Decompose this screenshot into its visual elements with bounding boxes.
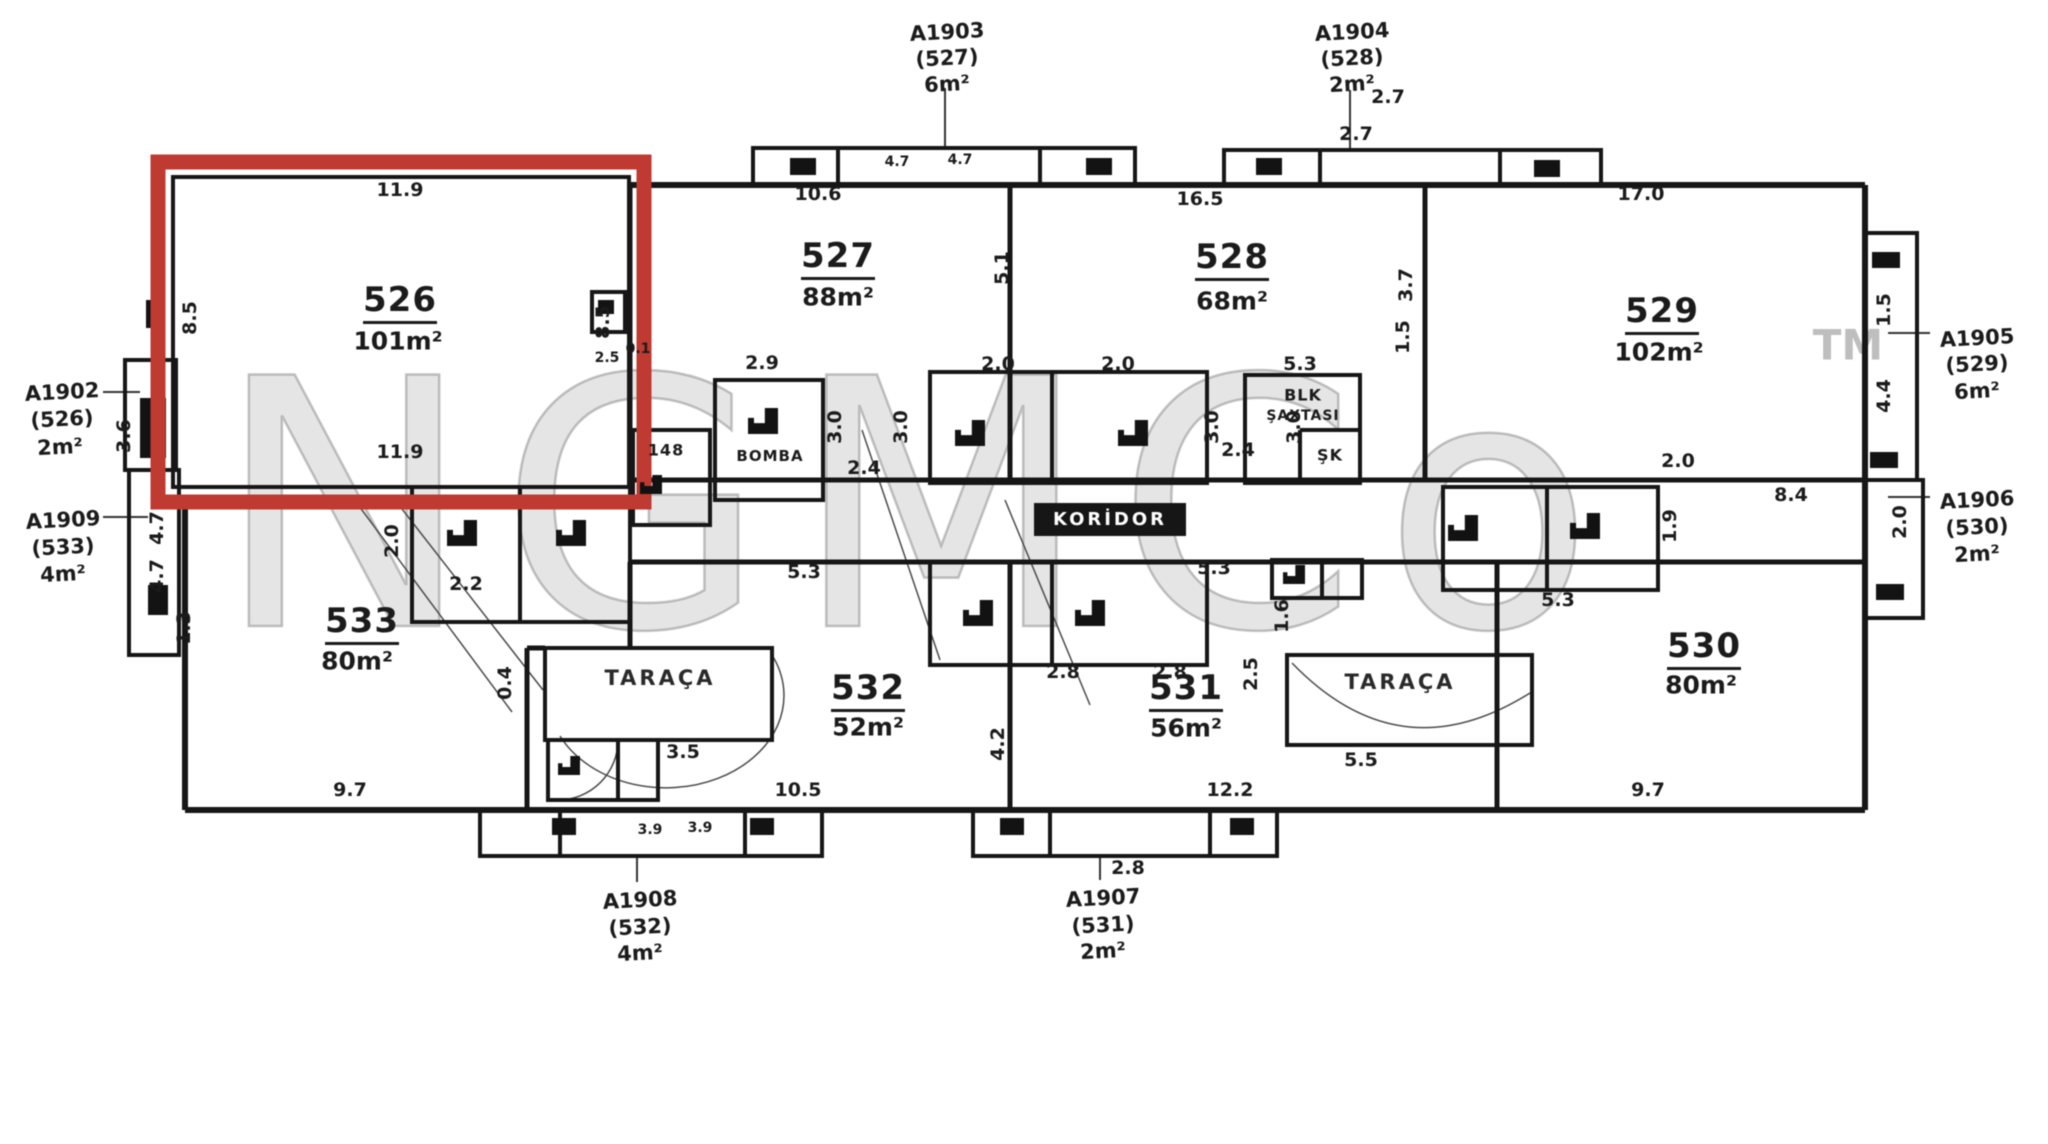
dim: 5.3 bbox=[1197, 557, 1231, 579]
dim: 2.0 bbox=[1661, 450, 1695, 472]
dim: 8.5 bbox=[179, 301, 201, 335]
sk-shaft-label: ŞK bbox=[1317, 446, 1343, 465]
dim: 1.9 bbox=[1659, 509, 1681, 543]
dim: 11.9 bbox=[377, 441, 424, 463]
dim: 0.4 bbox=[494, 666, 516, 700]
callout-a1906-area: 2m² bbox=[1954, 541, 2001, 567]
room-528-number: 528 bbox=[1195, 237, 1269, 281]
callout-a1902-ref: (526) bbox=[30, 405, 94, 432]
room-533-area: 80m² bbox=[321, 647, 393, 676]
callout-a1904-id: A1904 bbox=[1314, 18, 1390, 46]
dim: 11.9 bbox=[377, 179, 424, 201]
dim: 2.4 bbox=[847, 457, 881, 479]
callout-a1909-area: 4m² bbox=[40, 561, 87, 587]
callout-a1907-ref: (531) bbox=[1071, 911, 1135, 938]
dim: 2.2 bbox=[449, 573, 483, 595]
dim: 10.6 bbox=[795, 183, 842, 205]
callout-a1905-id: A1905 bbox=[1939, 324, 2015, 352]
dim: 2.0 bbox=[1889, 505, 1911, 539]
terrace-left-label: TARAÇA bbox=[604, 666, 715, 690]
dim: 3.7 bbox=[1395, 268, 1417, 302]
dim: 2.0 bbox=[981, 353, 1015, 375]
dim: 3.9 bbox=[688, 820, 713, 836]
dim: 4.7 bbox=[885, 154, 910, 170]
room-529-number: 529 bbox=[1625, 291, 1699, 335]
dim: 5.5 bbox=[1344, 749, 1378, 771]
callout-a1902-id: A1902 bbox=[24, 378, 100, 406]
pump-room-label: BOMBA bbox=[736, 447, 803, 465]
room-526-area: 101m² bbox=[353, 327, 442, 356]
callout-a1903-area: 6m² bbox=[924, 71, 971, 97]
dim: 4.7 bbox=[948, 152, 973, 168]
callout-a1904-ref: (528) bbox=[1320, 44, 1384, 71]
dim: 3.0 bbox=[890, 410, 912, 444]
callout-a1906-ref: (530) bbox=[1945, 513, 2009, 540]
callout-a1908-id: A1908 bbox=[602, 886, 678, 914]
floorplan-lines bbox=[0, 0, 2048, 1144]
callout-a1907-area: 2m² bbox=[1080, 938, 1127, 964]
dim: 4.7 bbox=[146, 559, 168, 593]
dim: 12.2 bbox=[1207, 779, 1254, 801]
room-148-label: 148 bbox=[648, 441, 684, 460]
callout-a1909-ref: (533) bbox=[31, 533, 95, 560]
dim: 9.7 bbox=[333, 779, 367, 801]
floorplan-canvas: NGMCo TM bbox=[0, 0, 2048, 1144]
room-532-number: 532 bbox=[831, 668, 905, 712]
dim: 3.6 bbox=[113, 419, 135, 453]
dim: 2.5 bbox=[595, 350, 620, 366]
dim: 0.1 bbox=[626, 341, 651, 357]
callout-a1908-ref: (532) bbox=[608, 913, 672, 940]
dim: 5.3 bbox=[1283, 353, 1317, 375]
callout-a1902-area: 2m² bbox=[37, 434, 84, 460]
dim: 2.7 bbox=[1371, 86, 1405, 108]
dim: 3.9 bbox=[638, 822, 663, 838]
dim: 1.6 bbox=[1271, 599, 1293, 633]
room-533-number: 533 bbox=[325, 601, 399, 645]
dim: 1.5 bbox=[1392, 320, 1414, 354]
dim: 2.4 bbox=[1221, 439, 1255, 461]
dim: 1.5 bbox=[1873, 293, 1895, 327]
dim: 3.0 bbox=[1201, 410, 1223, 444]
room-531-area: 56m² bbox=[1150, 714, 1222, 743]
dim: 2.9 bbox=[745, 352, 779, 374]
dim: 17.0 bbox=[1618, 183, 1665, 205]
callout-a1909-id: A1909 bbox=[25, 506, 101, 534]
callout-a1903-id: A1903 bbox=[909, 18, 985, 46]
room-528-area: 68m² bbox=[1196, 287, 1268, 316]
dim: 3.5 bbox=[666, 741, 700, 763]
dim: 2.8 bbox=[1046, 661, 1080, 683]
corridor-label: KORİDOR bbox=[1034, 503, 1186, 536]
dim: 2.0 bbox=[381, 524, 403, 558]
dim: 3.0 bbox=[1283, 410, 1305, 444]
room-527-number: 527 bbox=[801, 236, 875, 280]
dim: 2.0 bbox=[1101, 353, 1135, 375]
dim: 1.3 bbox=[173, 611, 195, 645]
dim: 8.5 bbox=[592, 305, 614, 339]
callout-a1908-area: 4m² bbox=[617, 940, 664, 966]
dim: 2.7 bbox=[1339, 123, 1373, 145]
callout-a1907-id: A1907 bbox=[1065, 884, 1141, 912]
dim: 5.3 bbox=[787, 561, 821, 583]
room-529-area: 102m² bbox=[1614, 338, 1703, 367]
dim: 2.5 bbox=[1240, 657, 1262, 691]
dim: 9.7 bbox=[1631, 779, 1665, 801]
room-532-area: 52m² bbox=[832, 713, 904, 742]
callout-a1905-ref: (529) bbox=[1945, 350, 2009, 377]
dim: 4.2 bbox=[987, 727, 1009, 761]
dim: 5.1 bbox=[991, 251, 1013, 285]
room-530-number: 530 bbox=[1667, 626, 1741, 670]
callout-a1904-area: 2m² bbox=[1329, 71, 1376, 97]
dim: 2.8 bbox=[1111, 857, 1145, 879]
room-526-number: 526 bbox=[363, 280, 437, 324]
dim: 3.0 bbox=[824, 410, 846, 444]
callout-a1903-ref: (527) bbox=[915, 44, 979, 71]
dim: 5.3 bbox=[1541, 589, 1575, 611]
dim: 4.7 bbox=[146, 511, 168, 545]
room-527-area: 88m² bbox=[802, 283, 874, 312]
shaft-label-line1: BLK bbox=[1284, 386, 1322, 405]
dim: 10.5 bbox=[775, 779, 822, 801]
callout-a1905-area: 6m² bbox=[1954, 378, 2001, 404]
dim: 16.5 bbox=[1177, 188, 1224, 210]
dim: 8.4 bbox=[1774, 484, 1808, 506]
room-530-area: 80m² bbox=[1665, 671, 1737, 700]
dim: 4.4 bbox=[1873, 379, 1895, 413]
terrace-right-label: TARAÇA bbox=[1344, 670, 1455, 694]
callout-a1906-id: A1906 bbox=[1939, 486, 2015, 514]
dim: 2.8 bbox=[1153, 661, 1187, 683]
